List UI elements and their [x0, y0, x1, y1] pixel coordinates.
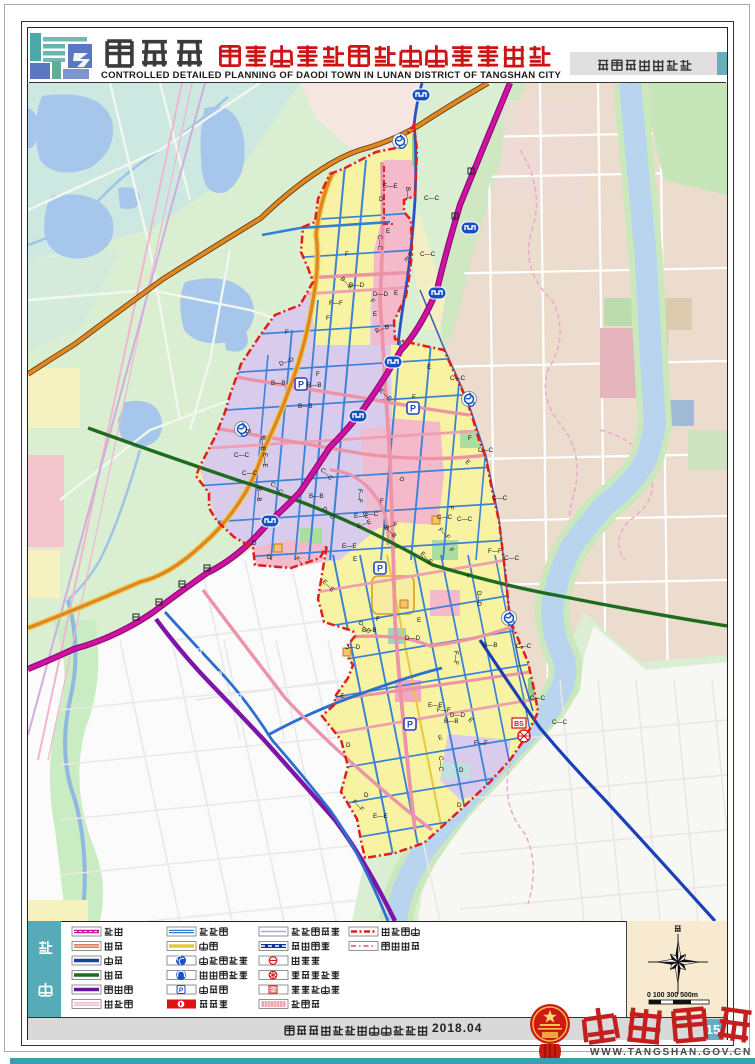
svg-text:D: D — [252, 540, 257, 547]
svg-text:F—F: F—F — [474, 740, 488, 747]
svg-text:B—B: B—B — [298, 403, 312, 410]
svg-text:F: F — [468, 435, 472, 442]
svg-text:B—B: B—B — [309, 493, 323, 500]
svg-text:P: P — [407, 720, 413, 730]
svg-text:B—B: B—B — [362, 627, 376, 634]
svg-text:E: E — [394, 290, 398, 297]
svg-text:D: D — [267, 554, 272, 561]
svg-text:B—B: B—B — [271, 380, 285, 387]
svg-text:D—D: D—D — [349, 282, 365, 289]
svg-text:F: F — [345, 251, 349, 258]
svg-text:E: E — [353, 556, 357, 563]
svg-text:B—B: B—B — [307, 382, 321, 389]
svg-text:P: P — [377, 564, 383, 574]
svg-text:E: E — [417, 617, 421, 624]
svg-text:P: P — [298, 380, 304, 390]
svg-text:F: F — [467, 573, 471, 580]
svg-text:F: F — [412, 394, 416, 401]
svg-text:E—E: E—E — [383, 183, 397, 190]
svg-text:E: E — [427, 364, 431, 371]
svg-text:F: F — [316, 371, 320, 378]
svg-text:D: D — [459, 767, 464, 774]
svg-text:C—C: C—C — [478, 447, 494, 454]
svg-text:F: F — [447, 506, 454, 510]
svg-text:C—C: C—C — [420, 251, 436, 258]
svg-text:D: D — [379, 196, 384, 203]
svg-text:F—F: F—F — [452, 651, 459, 665]
svg-text:B—B: B—B — [483, 642, 497, 649]
svg-text:F: F — [376, 616, 380, 623]
svg-text:D: D — [364, 792, 369, 799]
svg-text:D—D: D—D — [405, 635, 421, 642]
svg-text:C—C: C—C — [492, 495, 508, 502]
svg-text:C—C: C—C — [450, 375, 466, 382]
svg-text:C—C: C—C — [363, 511, 379, 518]
svg-text:BS: BS — [514, 721, 524, 728]
svg-text:E—E: E—E — [261, 453, 268, 467]
svg-text:P: P — [410, 404, 416, 414]
svg-text:C—C: C—C — [242, 470, 258, 477]
svg-text:B—B: B—B — [444, 718, 458, 725]
svg-text:C—C: C—C — [234, 452, 250, 459]
svg-text:D: D — [346, 742, 351, 749]
svg-text:D—D: D—D — [373, 291, 389, 298]
svg-text:C—C: C—C — [552, 719, 568, 726]
svg-text:E: E — [386, 228, 390, 235]
svg-text:E—E: E—E — [342, 543, 356, 550]
svg-text:E: E — [373, 311, 377, 318]
svg-text:E—E: E—E — [428, 702, 442, 709]
svg-text:F—F: F—F — [329, 300, 343, 307]
svg-text:B—B: B—B — [255, 487, 262, 501]
svg-text:F—F: F—F — [356, 489, 363, 503]
svg-text:F: F — [326, 315, 330, 322]
svg-text:D: D — [457, 802, 462, 809]
svg-text:C—C: C—C — [376, 235, 383, 251]
svg-text:0 100 300 500m: 0 100 300 500m — [647, 992, 698, 999]
svg-text:C—C: C—C — [424, 195, 440, 202]
svg-text:B—B: B—B — [259, 436, 266, 450]
svg-text:E: E — [244, 429, 251, 433]
svg-text:F: F — [380, 498, 384, 505]
svg-text:E—E: E—E — [373, 813, 387, 820]
svg-text:C—C: C—C — [457, 516, 473, 523]
svg-text:F—F: F—F — [488, 548, 502, 555]
svg-text:C—C: C—C — [516, 643, 532, 650]
svg-text:BS: BS — [270, 988, 277, 994]
svg-text:C—C: C—C — [437, 756, 444, 772]
svg-text:C—C: C—C — [530, 695, 546, 702]
svg-text:P: P — [179, 987, 184, 994]
svg-text:F: F — [285, 329, 289, 336]
svg-text:C—C: C—C — [437, 514, 453, 521]
svg-text:C—C: C—C — [504, 555, 520, 562]
svg-text:D—D: D—D — [475, 591, 482, 607]
